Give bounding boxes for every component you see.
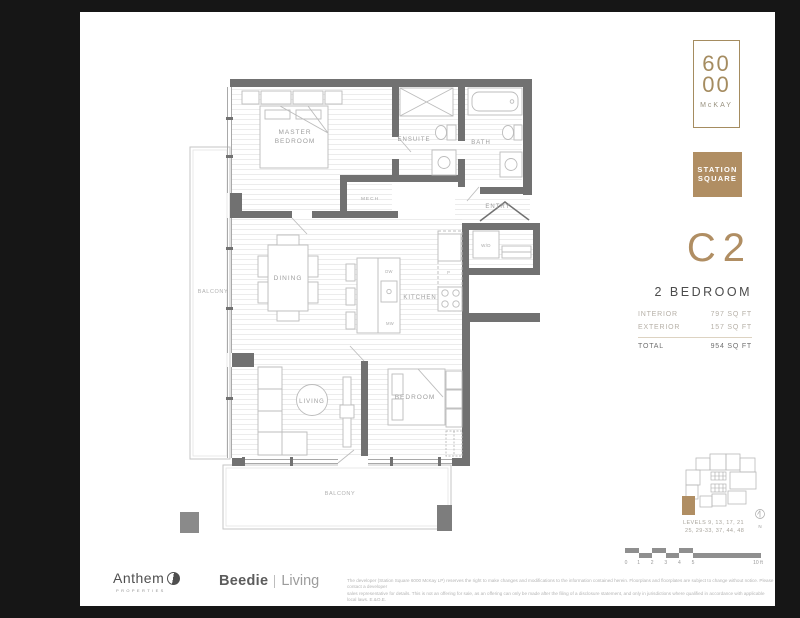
levels-line-1: LEVELS 9, 13, 17, 21 xyxy=(683,519,744,527)
stat-value-interior: 797 SQ FT xyxy=(711,308,752,321)
stat-label-interior: INTERIOR xyxy=(638,308,678,321)
stat-value-exterior: 157 SQ FT xyxy=(711,321,752,334)
stat-row-exterior: EXTERIOR 157 SQ FT xyxy=(638,321,752,334)
scale-segment xyxy=(679,548,693,553)
scale-end-label: 10 ft xyxy=(753,560,763,566)
label-living: LIVING xyxy=(299,399,325,405)
balcony-pillar xyxy=(437,505,452,531)
scale-tick: 3 xyxy=(664,560,667,566)
stat-label-total: TOTAL xyxy=(638,340,664,353)
label-dw: DW xyxy=(385,269,393,274)
scale-tick: 0 xyxy=(625,560,628,566)
label-ensuite: ENSUITE xyxy=(397,137,430,143)
keyplan-units xyxy=(686,454,756,507)
scale-segment xyxy=(652,548,666,553)
levels-note: LEVELS 9, 13, 17, 21 25, 29-33, 37, 44, … xyxy=(683,519,744,535)
building-logo: 60 00 McKAY xyxy=(693,40,740,128)
scale-tick: 2 xyxy=(651,560,654,566)
unit-code: C2 xyxy=(638,226,752,270)
stat-label-exterior: EXTERIOR xyxy=(638,321,680,334)
beedie-divider xyxy=(274,575,275,588)
balcony-door-gap xyxy=(338,456,368,466)
scale-segment xyxy=(639,553,653,558)
label-bedroom: BEDROOM xyxy=(395,394,436,401)
badge-line-1: STATION xyxy=(693,165,742,174)
anthem-logo: Anthem PROPERTIES xyxy=(113,570,180,593)
floorplan-drawing: MASTER BEDROOM ENSUITE BATH MECH ENTRY W… xyxy=(180,75,540,535)
label-dining: DINING xyxy=(274,275,303,282)
stat-value-total: 954 SQ FT xyxy=(711,340,752,353)
anthem-wordmark: Anthem xyxy=(113,570,164,586)
scale-tick: 1 xyxy=(637,560,640,566)
disclaimer-line-1: The developer (Station Square 6000 McKay… xyxy=(347,578,775,591)
balcony-left xyxy=(190,147,230,459)
anthem-properties-label: PROPERTIES xyxy=(116,588,180,593)
stat-row-interior: INTERIOR 797 SQ FT xyxy=(638,308,752,321)
screenshot-root: { "colors":{"background":"#161616","pape… xyxy=(0,0,800,618)
north-label: N xyxy=(758,524,761,529)
building-name: McKAY xyxy=(694,102,739,109)
levels-line-2: 25, 29-33, 37, 44, 48 xyxy=(685,527,744,535)
label-master-2: BEDROOM xyxy=(275,138,316,145)
label-mech: MECH xyxy=(361,196,379,202)
scale-segment xyxy=(666,553,680,558)
badge-line-2: SQUARE xyxy=(693,174,742,183)
scale-tick: 4 xyxy=(678,560,681,566)
keyplan-highlighted-unit xyxy=(682,496,695,515)
station-square-badge: STATION SQUARE xyxy=(693,152,742,197)
building-number-top: 60 xyxy=(694,53,739,74)
legal-disclaimer: The developer (Station Square 6000 McKay… xyxy=(347,578,775,604)
stats-divider xyxy=(638,337,752,338)
label-bath: BATH xyxy=(471,140,491,146)
label-master-1: MASTER xyxy=(278,129,311,136)
disclaimer-line-2: sales representative for details. This i… xyxy=(347,591,775,604)
label-balcony-left: BALCONY xyxy=(198,289,229,295)
beedie-wordmark: Beedie xyxy=(219,573,268,589)
balcony-bottom xyxy=(223,465,451,529)
anthem-logo-icon xyxy=(167,572,180,585)
label-pantry: P xyxy=(447,270,451,275)
stat-row-total: TOTAL 954 SQ FT xyxy=(638,340,752,353)
label-balcony-bottom: BALCONY xyxy=(325,491,356,497)
label-mw: MW xyxy=(386,321,394,326)
north-compass-icon xyxy=(756,510,765,519)
building-number-bottom: 00 xyxy=(694,74,739,95)
living-wordmark: Living xyxy=(281,573,319,589)
scale-tick: 5 xyxy=(692,560,695,566)
label-wd: W/D xyxy=(481,243,491,248)
label-entry: ENTRY xyxy=(485,204,510,210)
exterior-column xyxy=(180,512,199,533)
floorplan-sheet: MASTER BEDROOM ENSUITE BATH MECH ENTRY W… xyxy=(80,12,775,606)
scale-segment xyxy=(693,553,761,558)
beedie-living-logo: Beedie Living xyxy=(219,573,319,589)
scale-bar: 0 1 2 3 4 5 10 ft xyxy=(625,546,761,570)
label-kitchen: KITCHEN xyxy=(403,295,436,301)
unit-stats: INTERIOR 797 SQ FT EXTERIOR 157 SQ FT TO… xyxy=(638,308,752,353)
scale-segment xyxy=(625,548,639,553)
keyplan-cores xyxy=(711,472,726,492)
unit-type: 2 BEDROOM xyxy=(638,285,752,299)
